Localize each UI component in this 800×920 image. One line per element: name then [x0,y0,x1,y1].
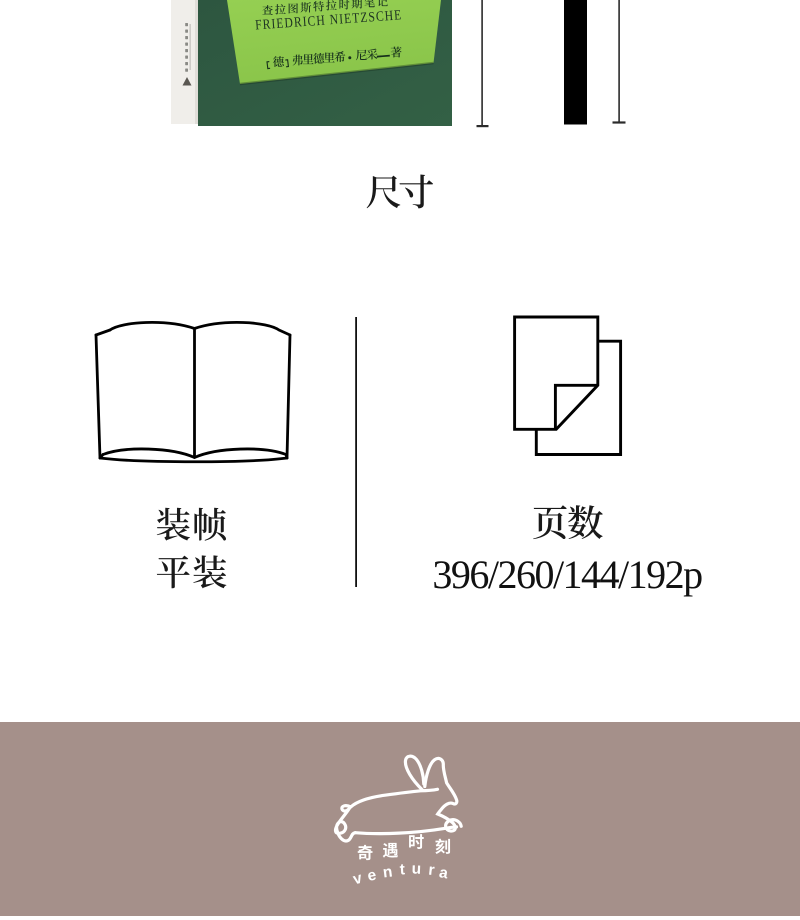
svg-text:u: u [411,861,421,878]
svg-text:t: t [399,861,405,878]
svg-text:396/260/144/192p: 396/260/144/192p [432,552,702,597]
